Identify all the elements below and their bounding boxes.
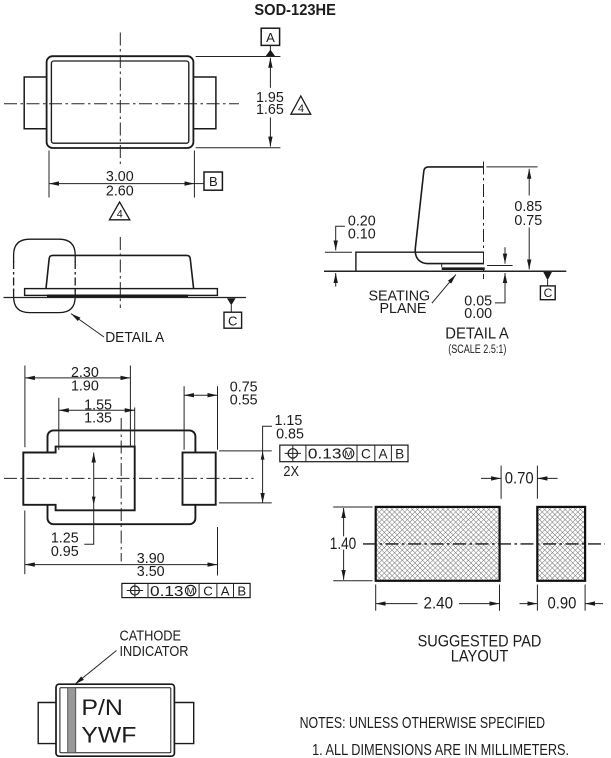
svg-text:0.70: 0.70 bbox=[505, 469, 534, 488]
svg-text:0.85: 0.85 bbox=[276, 427, 304, 443]
svg-text:C: C bbox=[203, 584, 213, 599]
svg-text:0.13: 0.13 bbox=[150, 584, 184, 600]
svg-text:0.00: 0.00 bbox=[464, 306, 492, 322]
svg-text:LAYOUT: LAYOUT bbox=[451, 647, 509, 666]
svg-text:(SCALE 2.5:1): (SCALE 2.5:1) bbox=[448, 342, 506, 356]
svg-text:A: A bbox=[379, 446, 389, 461]
svg-text:2.60: 2.60 bbox=[106, 184, 134, 200]
svg-text:1.65: 1.65 bbox=[256, 102, 284, 118]
svg-text:PLANE: PLANE bbox=[380, 301, 427, 317]
svg-text:A: A bbox=[221, 584, 230, 599]
svg-text:C: C bbox=[544, 286, 553, 300]
svg-text:1.40: 1.40 bbox=[330, 534, 357, 553]
svg-text:3.50: 3.50 bbox=[137, 564, 165, 580]
svg-text:YWF: YWF bbox=[81, 722, 136, 747]
svg-text:1.35: 1.35 bbox=[84, 410, 112, 426]
svg-text:1.90: 1.90 bbox=[71, 379, 99, 395]
svg-text:0.95: 0.95 bbox=[51, 544, 79, 560]
svg-text:0.90: 0.90 bbox=[547, 593, 576, 612]
svg-text:INDICATOR: INDICATOR bbox=[120, 643, 189, 660]
svg-text:0.55: 0.55 bbox=[230, 392, 258, 408]
svg-text:2.40: 2.40 bbox=[424, 593, 454, 612]
svg-text:2X: 2X bbox=[283, 464, 299, 480]
svg-text:C: C bbox=[228, 313, 237, 328]
svg-text:CATHODE: CATHODE bbox=[120, 627, 182, 644]
svg-text:P/N: P/N bbox=[81, 695, 123, 720]
svg-text:0.75: 0.75 bbox=[514, 213, 542, 229]
svg-text:M: M bbox=[187, 586, 195, 597]
svg-text:SOD-123HE: SOD-123HE bbox=[254, 2, 336, 19]
svg-text:DETAIL A: DETAIL A bbox=[445, 326, 509, 343]
svg-text:0.13: 0.13 bbox=[308, 446, 342, 462]
svg-text:DETAIL A: DETAIL A bbox=[105, 329, 165, 346]
svg-text:4: 4 bbox=[117, 208, 123, 220]
svg-text:0.10: 0.10 bbox=[348, 227, 376, 243]
svg-text:C: C bbox=[361, 446, 371, 461]
svg-text:B: B bbox=[395, 446, 404, 461]
svg-text:B: B bbox=[237, 584, 246, 599]
svg-text:4: 4 bbox=[298, 103, 304, 115]
svg-text:1. ALL DIMENSIONS ARE IN MILL: 1. ALL DIMENSIONS ARE IN MILLIMETERS. bbox=[312, 742, 569, 758]
svg-text:A: A bbox=[266, 30, 275, 45]
svg-text:NOTES: UNLESS OTHERWISE SPECIF: NOTES: UNLESS OTHERWISE SPECIFIED bbox=[300, 715, 545, 732]
svg-text:B: B bbox=[209, 174, 218, 189]
svg-text:M: M bbox=[344, 449, 352, 460]
